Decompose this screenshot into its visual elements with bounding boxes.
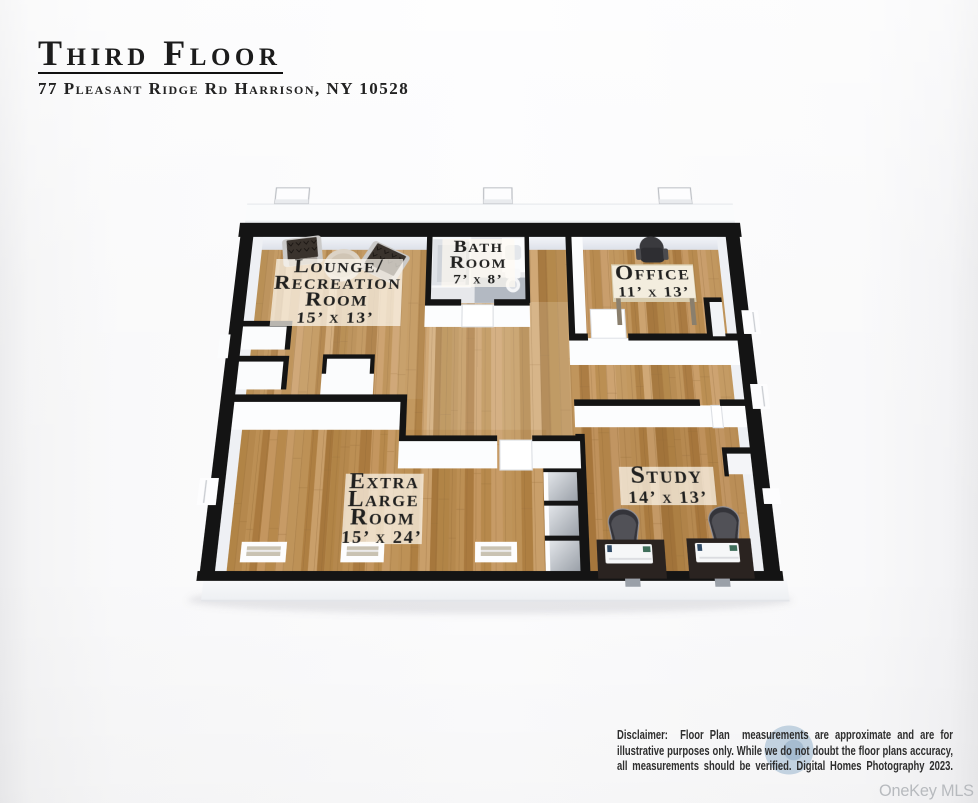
svg-text:11’ x 13’: 11’ x 13’ <box>618 284 691 300</box>
svg-text:Room: Room <box>449 252 507 272</box>
svg-text:15’ x 24’: 15’ x 24’ <box>341 528 423 548</box>
svg-text:Room: Room <box>304 288 368 310</box>
svg-text:Room: Room <box>349 505 416 531</box>
svg-text:Office: Office <box>614 263 691 285</box>
svg-text:7’ x 8’: 7’ x 8’ <box>453 272 503 287</box>
svg-text:Study: Study <box>630 463 704 489</box>
svg-text:14’ x 13’: 14’ x 13’ <box>628 488 709 508</box>
svg-text:15’ x 13’: 15’ x 13’ <box>296 309 375 327</box>
